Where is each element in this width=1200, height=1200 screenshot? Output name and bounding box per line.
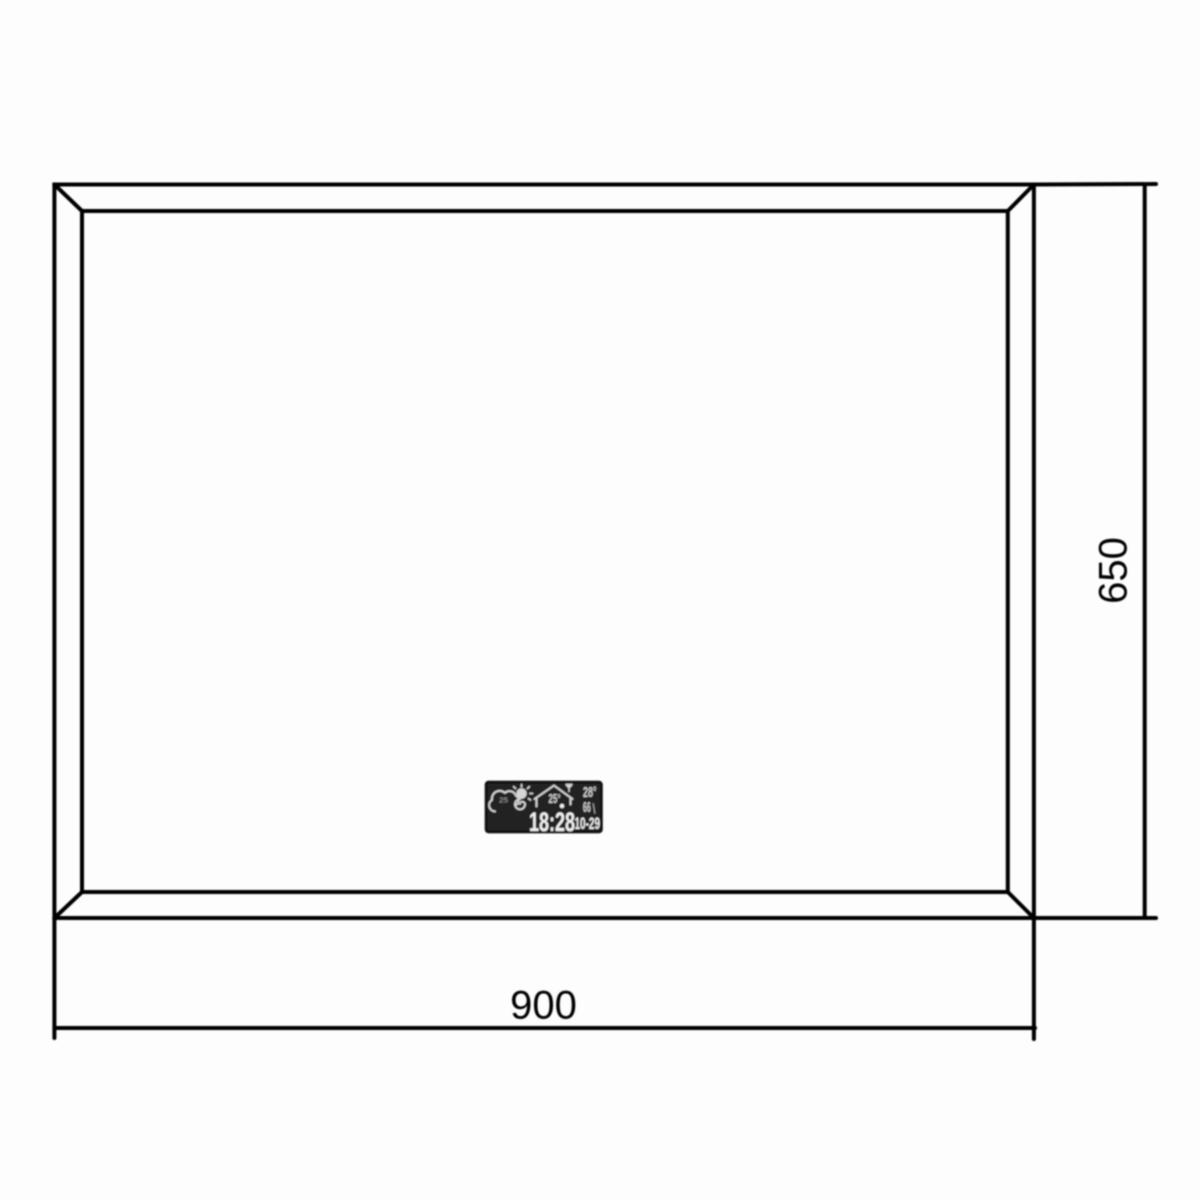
svg-text:650: 650 — [1092, 537, 1136, 604]
svg-text:18:28: 18:28 — [529, 807, 575, 837]
svg-text:900: 900 — [510, 984, 577, 1028]
svg-text:10-29: 10-29 — [575, 814, 601, 833]
svg-text:25°: 25° — [549, 791, 561, 806]
svg-text:25: 25 — [499, 798, 508, 805]
